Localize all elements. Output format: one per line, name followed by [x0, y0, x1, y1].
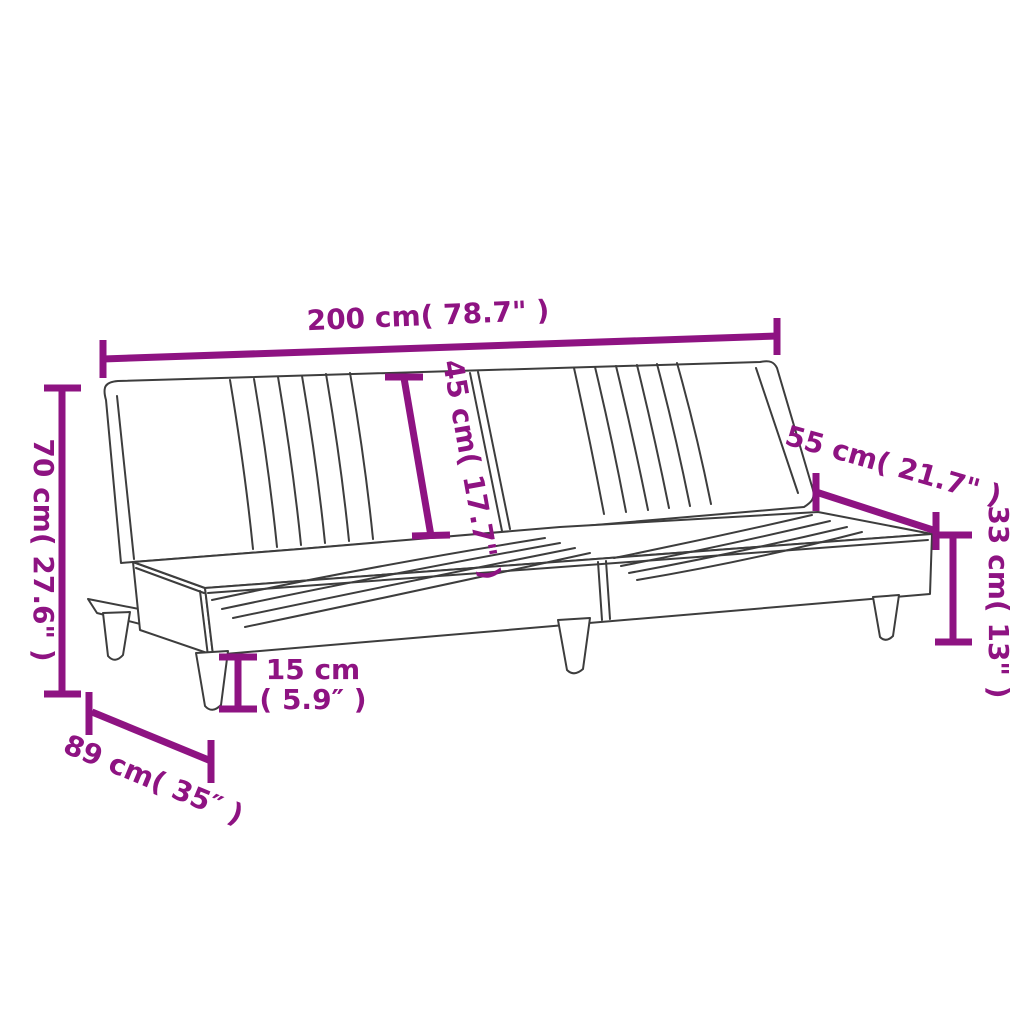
- dimension-leg-height: 15 cm ( 5.9″ ): [219, 653, 367, 716]
- dimension-seat-height: 33 cm( 13" ): [935, 505, 1015, 698]
- sofa-illustration: [88, 361, 932, 710]
- sofa-front-right-leg: [873, 595, 899, 640]
- dim-label-depth: 89 cm( 35″ ): [59, 728, 248, 832]
- dim-label-overall-width: 200 cm( 78.7" ): [306, 294, 550, 338]
- dim-label-leg-height-in: ( 5.9″ ): [259, 683, 366, 716]
- dimension-depth: 89 cm( 35″ ): [59, 692, 248, 831]
- sofa-dimension-drawing: 200 cm( 78.7" ) 45 cm( 17.7" ) 55 cm( 21…: [0, 0, 1024, 1024]
- dimension-diagram: 200 cm( 78.7" ) 45 cm( 17.7" ) 55 cm( 21…: [0, 0, 1024, 1024]
- sofa-front-middle-leg: [558, 618, 590, 673]
- dim-label-overall-height: 70 cm( 27.6" ): [27, 438, 60, 661]
- dim-label-seat-height: 33 cm( 13" ): [982, 505, 1015, 698]
- dimension-overall-height: 70 cm( 27.6" ): [27, 388, 81, 694]
- dim-label-leg-height-cm: 15 cm: [266, 653, 361, 686]
- sofa-back-left-leg: [103, 612, 130, 660]
- dimension-line: [103, 336, 777, 359]
